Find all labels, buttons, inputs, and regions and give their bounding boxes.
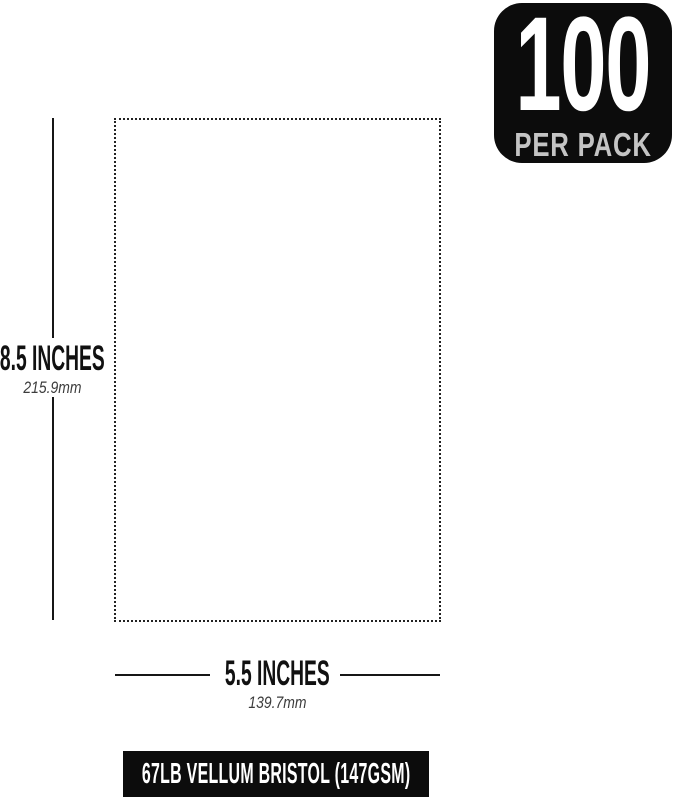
product-dimension-diagram: 100 PER PACK 8.5 INCHES 215.9mm 5.5 INCH…: [0, 0, 679, 801]
paper-sheet-outline: [114, 118, 441, 622]
height-inches-label: 8.5 INCHES: [0, 341, 104, 376]
width-mm-label: 139.7mm: [248, 694, 306, 711]
height-dimension-label-group: 8.5 INCHES 215.9mm: [0, 341, 104, 396]
paper-type-label: 67LB VELLUM BRISTOL (147GSM): [142, 760, 411, 789]
width-dimension-label-group: 5.5 INCHES 139.7mm: [177, 656, 377, 711]
paper-type-banner: 67LB VELLUM BRISTOL (147GSM): [123, 751, 429, 797]
pack-count-badge: 100 PER PACK: [494, 3, 672, 163]
height-dimension-line-upper: [52, 118, 54, 338]
width-inches-label: 5.5 INCHES: [225, 656, 330, 691]
height-mm-label: 215.9mm: [23, 379, 81, 396]
pack-count-label: PER PACK: [514, 128, 651, 161]
pack-count-value: 100: [516, 5, 651, 126]
height-dimension-line-lower: [52, 397, 54, 620]
